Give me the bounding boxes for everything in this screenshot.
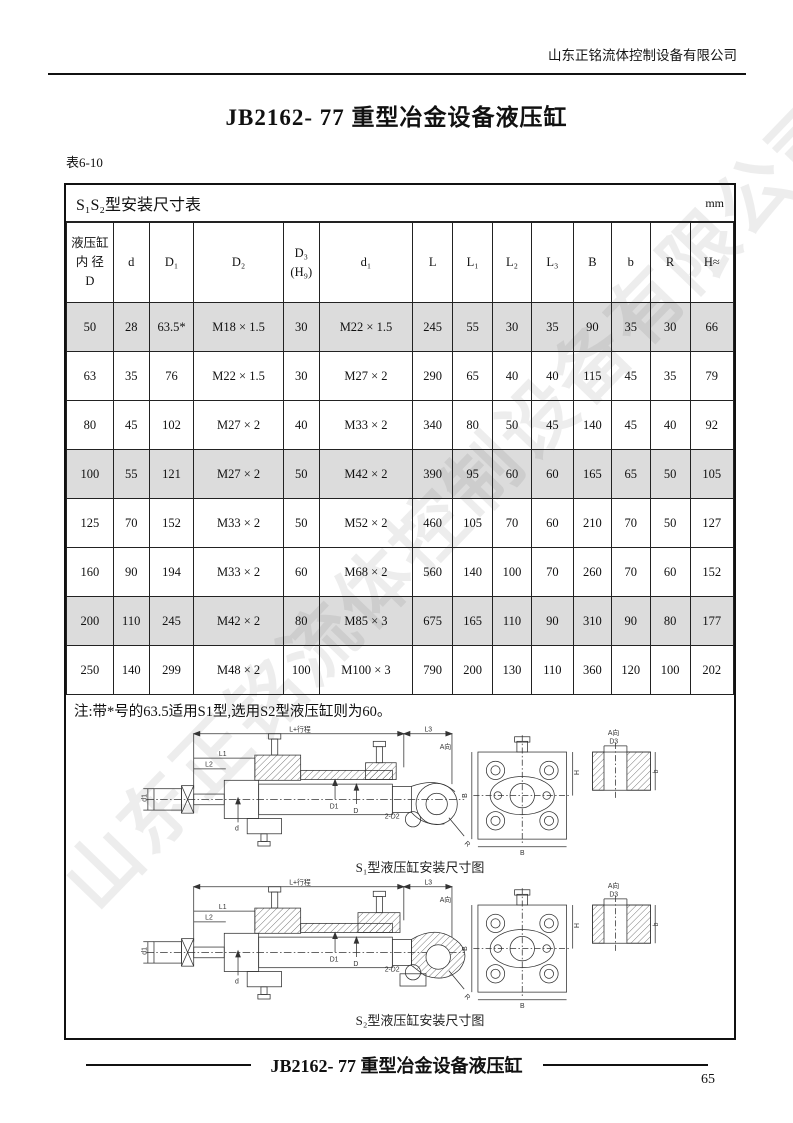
table-cell: 35 [531, 303, 573, 352]
table-title: S₁S₂型安装尺寸表 [76, 191, 201, 215]
company-name: 山东正铭流体控制设备有限公司 [548, 44, 737, 64]
s1-cylinder-diagram: L+行程 L3 A向 L1 L2 d1 d D1 D 2-D2 R [70, 723, 730, 859]
table-cell: 70 [611, 499, 650, 548]
table-cell: 194 [149, 548, 194, 597]
table-cell: 390 [413, 450, 453, 499]
table-cell: 50 [67, 303, 114, 352]
table-cell: 460 [413, 499, 453, 548]
s2-cylinder-diagram: L+行程 L3 A向 L1 L2 d1 d D1 D 2-D2 R [70, 876, 730, 1012]
table-cell: 245 [149, 597, 194, 646]
table-cell: 70 [493, 499, 532, 548]
s2-caption: S₂型液压缸安装尺寸图 [253, 1010, 587, 1029]
col-header-L3: L₃ [531, 223, 573, 303]
table-cell: 45 [611, 401, 650, 450]
table-cell: 110 [113, 597, 149, 646]
table-row: 8045102M27 × 240M33 × 234080504514045409… [67, 401, 734, 450]
table-cell: 79 [690, 352, 733, 401]
table-cell: 40 [493, 352, 532, 401]
table-cell: 35 [113, 352, 149, 401]
table-cell: M33 × 2 [194, 548, 283, 597]
table-cell: 50 [283, 450, 319, 499]
dim-label-d1: d1 [141, 947, 148, 955]
table-cell: 152 [149, 499, 194, 548]
table-cell: 121 [149, 450, 194, 499]
dim-label-H: H [574, 923, 581, 928]
table-cell: 250 [67, 646, 114, 695]
table-cell: 110 [493, 597, 532, 646]
table-cell: M33 × 2 [194, 499, 283, 548]
dim-label-l1: L1 [219, 751, 227, 758]
table-cell: M42 × 2 [194, 597, 283, 646]
table-cell: 90 [531, 597, 573, 646]
table-cell: 102 [149, 401, 194, 450]
table-cell: 45 [113, 401, 149, 450]
table-cell: M27 × 2 [194, 401, 283, 450]
table-cell: 210 [573, 499, 611, 548]
table-cell: M33 × 2 [319, 401, 412, 450]
table-cell: 28 [113, 303, 149, 352]
section-a-label: A向 [608, 881, 620, 890]
table-cell: 50 [493, 401, 532, 450]
col-header-B: B [573, 223, 611, 303]
table-cell: 40 [650, 401, 690, 450]
table-cell: 560 [413, 548, 453, 597]
dim-label-H: H [574, 770, 581, 775]
col-header-d: d [113, 223, 149, 303]
s1-caption: S₁型液压缸安装尺寸图 [253, 857, 587, 876]
footer: JB2162- 77 重型冶金设备液压缸 [0, 1052, 793, 1078]
table-cell: 60 [531, 450, 573, 499]
table-cell: 299 [149, 646, 194, 695]
table-cell: 200 [453, 646, 493, 695]
table-cell: 30 [283, 352, 319, 401]
table-cell: 152 [690, 548, 733, 597]
table-cell: 50 [650, 499, 690, 548]
page-title: JB2162- 77 重型冶金设备液压缸 [0, 98, 793, 132]
table-cell: 140 [573, 401, 611, 450]
section-a-label: A向 [608, 728, 620, 737]
table-cell: 60 [493, 450, 532, 499]
table-cell: 50 [283, 499, 319, 548]
table-cell: 340 [413, 401, 453, 450]
table-cell: 80 [453, 401, 493, 450]
footer-title: JB2162- 77 重型冶金设备液压缸 [271, 1052, 523, 1078]
s2-drawing: L+行程 L3 A向 L1 L2 d1 d D1 D 2-D2 R [66, 876, 734, 1029]
table-cell: 63.5* [149, 303, 194, 352]
table-cell: M27 × 2 [319, 352, 412, 401]
table-cell: 165 [453, 597, 493, 646]
table-cell: 55 [113, 450, 149, 499]
table-cell: 63 [67, 352, 114, 401]
dim-label-2-D2: 2-D2 [385, 814, 400, 821]
table-cell: 60 [650, 548, 690, 597]
table-cell: 55 [453, 303, 493, 352]
table-cell: M18 × 1.5 [194, 303, 283, 352]
table-cell: 30 [650, 303, 690, 352]
table-cell: 105 [453, 499, 493, 548]
dim-label-B-vert: B [462, 793, 469, 798]
table-cell: 70 [113, 499, 149, 548]
table-cell: 60 [283, 548, 319, 597]
view-a-label: A向 [440, 742, 452, 751]
table-cell: 177 [690, 597, 733, 646]
table-cell: 70 [611, 548, 650, 597]
table-cell: 290 [413, 352, 453, 401]
dim-label-l2: L2 [205, 915, 213, 922]
col-header-d1: d₁ [319, 223, 412, 303]
table-cell: M42 × 2 [319, 450, 412, 499]
table-cell: 50 [650, 450, 690, 499]
table-cell: 90 [611, 597, 650, 646]
table-cell: 35 [650, 352, 690, 401]
dim-label-l2: L2 [205, 762, 213, 769]
table-cell: 202 [690, 646, 733, 695]
table-cell: 160 [67, 548, 114, 597]
col-header-L: L [413, 223, 453, 303]
table-cell: 130 [493, 646, 532, 695]
col-header-D3: D₃ (H₉) [283, 223, 319, 303]
table-cell: M48 × 2 [194, 646, 283, 695]
table-cell: 90 [113, 548, 149, 597]
table-cell: 115 [573, 352, 611, 401]
table-cell: 80 [283, 597, 319, 646]
table-cell: M68 × 2 [319, 548, 412, 597]
table-cell: 125 [67, 499, 114, 548]
table-cell: 40 [283, 401, 319, 450]
table-row: 16090194M33 × 260M68 × 25601401007026070… [67, 548, 734, 597]
table-cell: 65 [611, 450, 650, 499]
table-cell: 120 [611, 646, 650, 695]
table-cell: 60 [531, 499, 573, 548]
dim-label-D1: D1 [330, 957, 339, 964]
col-header-L1: L₁ [453, 223, 493, 303]
table-row: 200110245M42 × 280M85 × 3675165110903109… [67, 597, 734, 646]
table-cell: 100 [650, 646, 690, 695]
header-divider [48, 73, 746, 75]
table-cell: 260 [573, 548, 611, 597]
dim-label-D: D [353, 808, 358, 815]
dim-label-l3: L3 [424, 879, 432, 886]
table-cell: 45 [531, 401, 573, 450]
table-cell: 127 [690, 499, 733, 548]
table-cell: 30 [493, 303, 532, 352]
table-row: 10055121M27 × 250M42 × 23909560601656550… [67, 450, 734, 499]
col-header-D1: D₁ [149, 223, 194, 303]
table-row: 502863.5*M18 × 1.530M22 × 1.524555303590… [67, 303, 734, 352]
dim-label-R: R [463, 993, 471, 1001]
table-cell: M27 × 2 [194, 450, 283, 499]
col-header-bore: 液压缸 内 径 D [67, 223, 114, 303]
table-cell: 40 [531, 352, 573, 401]
table-cell: 76 [149, 352, 194, 401]
table-cell: 165 [573, 450, 611, 499]
col-header-L2: L₂ [493, 223, 532, 303]
dim-label-l1: L1 [219, 904, 227, 911]
table-cell: 92 [690, 401, 733, 450]
dim-label-d1: d1 [141, 794, 148, 802]
table-cell: 90 [573, 303, 611, 352]
dim-label-stroke: L+行程 [289, 877, 311, 886]
footer-rule-left [86, 1064, 251, 1066]
col-header-b: b [611, 223, 650, 303]
dim-label-D3: D3 [609, 892, 618, 899]
table-cell: 310 [573, 597, 611, 646]
table-row: 250140299M48 × 2100M100 × 37902001301103… [67, 646, 734, 695]
table-cell: M52 × 2 [319, 499, 412, 548]
dim-label-R: R [463, 840, 471, 848]
dim-label-d: d [235, 826, 239, 833]
col-header-R: R [650, 223, 690, 303]
table-cell: 675 [413, 597, 453, 646]
table-cell: 80 [67, 401, 114, 450]
col-header-D2: D₂ [194, 223, 283, 303]
dim-label-D1: D1 [330, 804, 339, 811]
s1-drawing: L+行程 L3 A向 L1 L2 d1 d D1 D 2-D2 R [66, 723, 734, 876]
table-cell: 100 [493, 548, 532, 597]
table-cell: 65 [453, 352, 493, 401]
table-cell: 30 [283, 303, 319, 352]
table-cell: 100 [283, 646, 319, 695]
table-cell: 200 [67, 597, 114, 646]
dim-label-d: d [235, 979, 239, 986]
page-number: 65 [701, 1072, 715, 1088]
table-cell: 80 [650, 597, 690, 646]
dim-label-B-vert: B [462, 946, 469, 951]
table-cell: M22 × 1.5 [194, 352, 283, 401]
dim-label-l3: L3 [424, 726, 432, 733]
table-cell: 95 [453, 450, 493, 499]
table-cell: 790 [413, 646, 453, 695]
col-header-H: H≈ [690, 223, 733, 303]
table-cell: M22 × 1.5 [319, 303, 412, 352]
table-title-row: S₁S₂型安装尺寸表 mm [66, 185, 734, 222]
table-row: 633576M22 × 1.530M27 × 22906540401154535… [67, 352, 734, 401]
table-number-label: 表6-10 [66, 152, 103, 171]
dim-label-2-D2: 2-D2 [385, 967, 400, 974]
content-box: S₁S₂型安装尺寸表 mm 液压缸 内 径 D d D₁ D₂ D₃ (H₉) … [64, 183, 736, 1040]
table-cell: 35 [611, 303, 650, 352]
footer-rule-right [543, 1064, 708, 1066]
table-cell: 45 [611, 352, 650, 401]
table-cell: 140 [113, 646, 149, 695]
dim-label-D3: D3 [609, 739, 618, 746]
table-footnote: 注:带*号的63.5适用S1型,选用S2型液压缸则为60。 [66, 695, 734, 723]
table-cell: 360 [573, 646, 611, 695]
dimension-table: 液压缸 内 径 D d D₁ D₂ D₃ (H₉) d₁ L L₁ L₂ L₃ … [66, 222, 734, 695]
view-a-label: A向 [440, 895, 452, 904]
header-row: 液压缸 内 径 D d D₁ D₂ D₃ (H₉) d₁ L L₁ L₂ L₃ … [67, 223, 734, 303]
unit-label: mm [705, 196, 724, 211]
table-cell: 70 [531, 548, 573, 597]
table-cell: 100 [67, 450, 114, 499]
table-cell: 66 [690, 303, 733, 352]
table-cell: 140 [453, 548, 493, 597]
dim-label-stroke: L+行程 [289, 724, 311, 733]
table-cell: 110 [531, 646, 573, 695]
table-row: 12570152M33 × 250M52 × 24601057060210705… [67, 499, 734, 548]
table-cell: M85 × 3 [319, 597, 412, 646]
table-cell: 245 [413, 303, 453, 352]
table-cell: M100 × 3 [319, 646, 412, 695]
dim-label-b: b [653, 769, 660, 773]
dim-label-b: b [653, 922, 660, 926]
table-cell: 105 [690, 450, 733, 499]
dim-label-D: D [353, 961, 358, 968]
